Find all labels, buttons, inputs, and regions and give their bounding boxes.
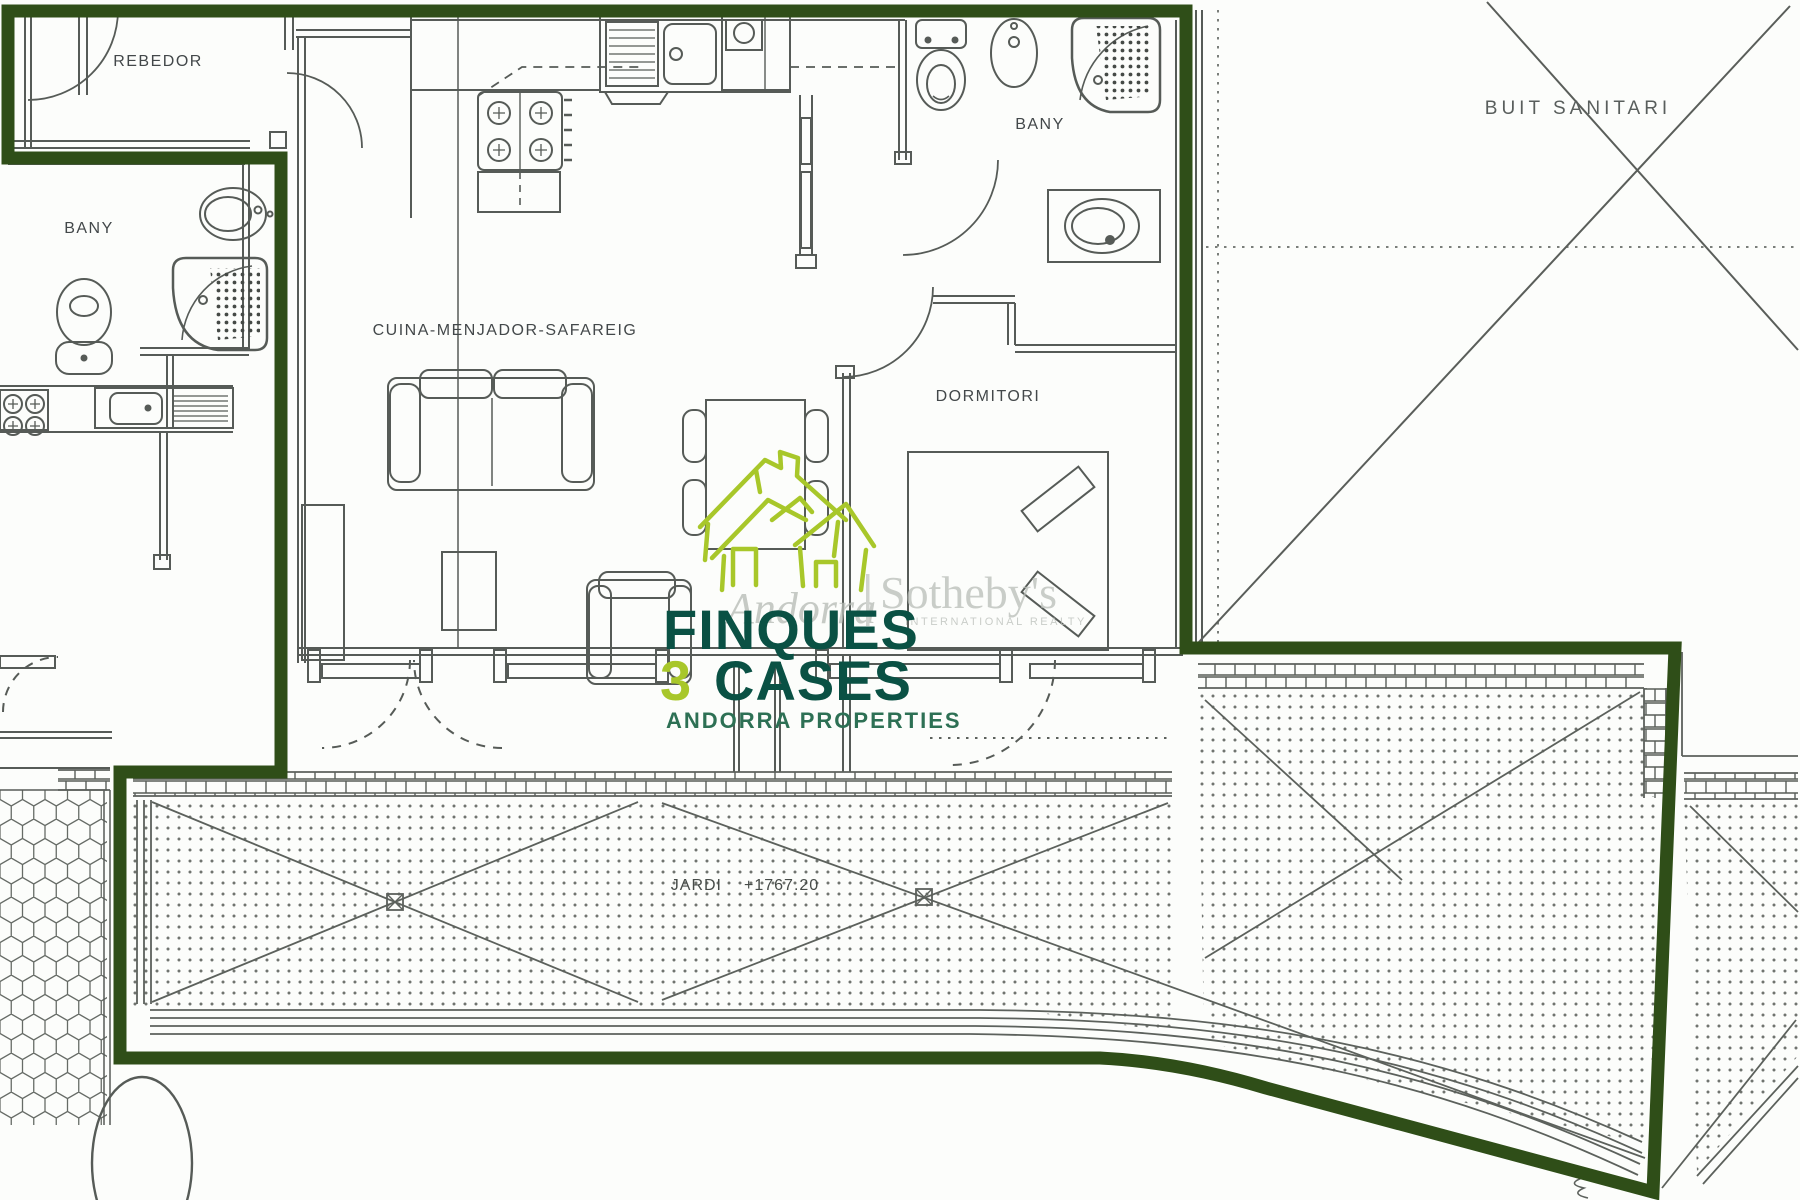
floor-plan-page: REBEDOR BANY CUINA-MENJADOR-SAFAREIG BAN… [0, 0, 1800, 1200]
floor-plan-drawing: REBEDOR BANY CUINA-MENJADOR-SAFAREIG BAN… [0, 0, 1800, 1200]
room-label-jardi: JARDI [671, 877, 722, 894]
jardi-elevation-value: +1767.20 [744, 877, 819, 894]
room-label-rebedor: REBEDOR [113, 53, 203, 70]
logo-tagline-text: ANDORRA PROPERTIES [666, 708, 962, 733]
room-label-buit-sanitari: BUIT SANITARI [1485, 98, 1671, 119]
room-label-bany-left: BANY [64, 220, 114, 237]
room-label-bany-right: BANY [1015, 116, 1065, 133]
room-label-cuina: CUINA-MENJADOR-SAFAREIG [373, 322, 638, 339]
watermark-subtitle-text: INTERNATIONAL REALTY [905, 616, 1087, 628]
logo-line2-text: CASES [714, 649, 912, 712]
room-label-dormitori: DORMITORI [936, 388, 1041, 405]
logo-number-text: 3 [660, 649, 692, 712]
